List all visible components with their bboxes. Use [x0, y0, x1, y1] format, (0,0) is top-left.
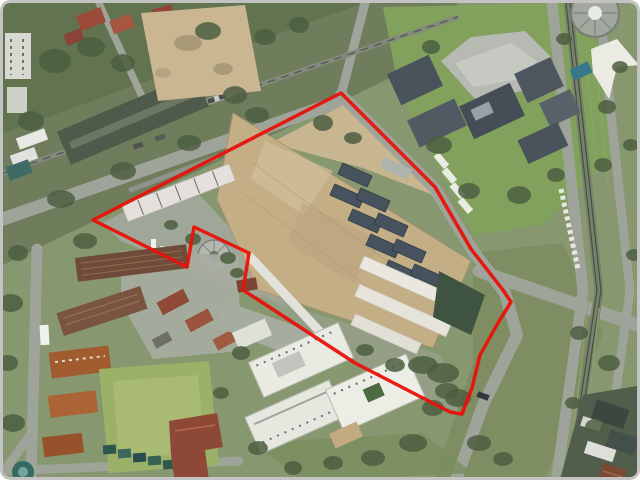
- truck: [39, 325, 49, 345]
- dirt-sportsfield: [141, 5, 261, 101]
- photo-frame: [0, 0, 640, 480]
- white-building: [5, 33, 31, 79]
- west-road: [31, 249, 37, 480]
- aerial-photo: [3, 3, 640, 480]
